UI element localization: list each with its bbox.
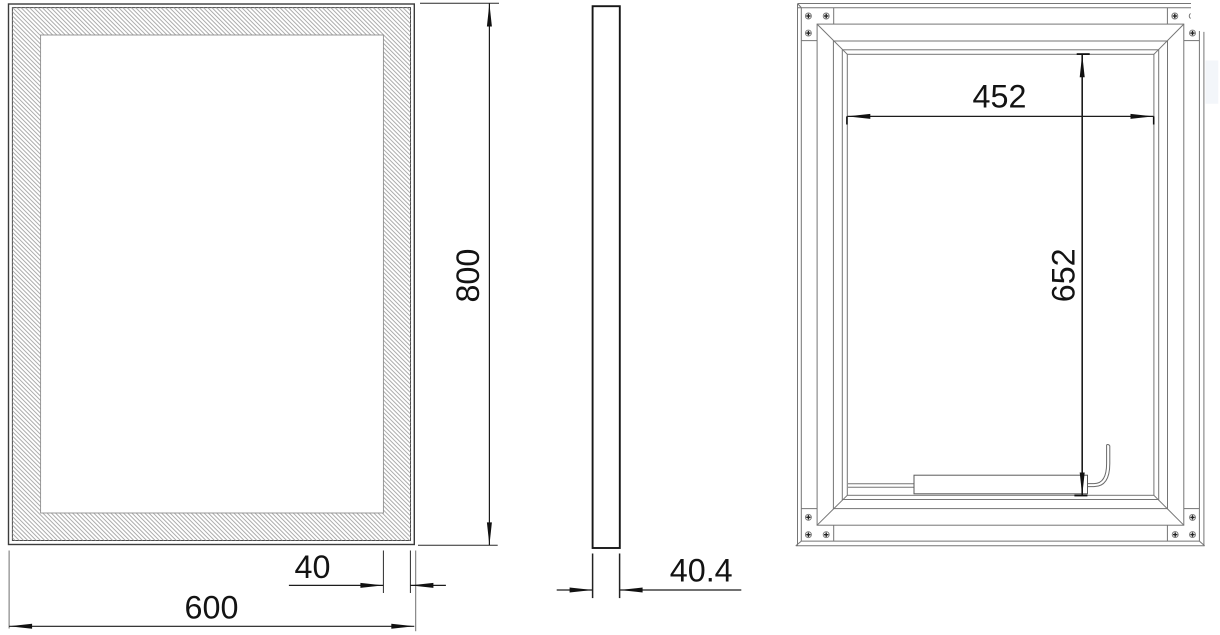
- svg-text:40: 40: [295, 549, 331, 585]
- svg-text:652: 652: [1046, 248, 1082, 302]
- svg-text:800: 800: [450, 249, 486, 303]
- svg-text:600: 600: [185, 590, 239, 626]
- svg-text:40.4: 40.4: [670, 553, 733, 589]
- svg-text:452: 452: [973, 78, 1027, 114]
